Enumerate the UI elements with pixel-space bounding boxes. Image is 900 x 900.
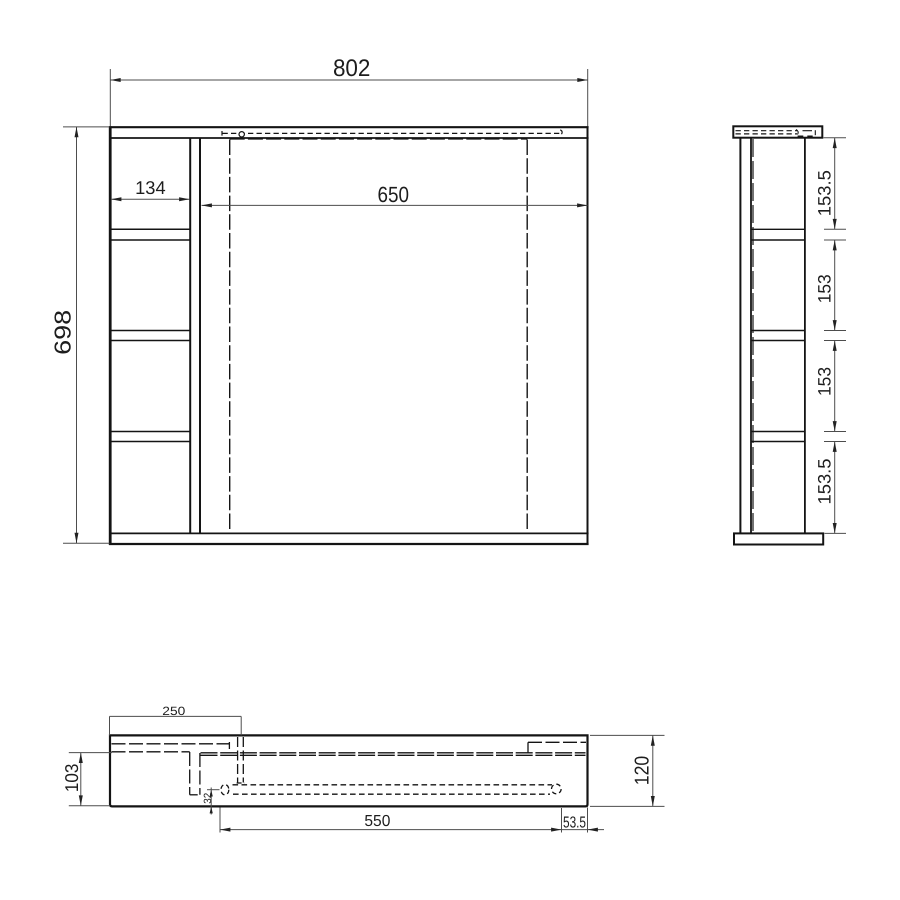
svg-text:153: 153 [814, 274, 834, 303]
svg-text:698: 698 [50, 310, 76, 355]
svg-text:53.5: 53.5 [563, 814, 586, 831]
svg-text:153: 153 [814, 367, 834, 396]
svg-text:153.5: 153.5 [814, 459, 834, 505]
svg-text:32: 32 [202, 793, 214, 804]
svg-text:802: 802 [333, 55, 371, 82]
svg-text:134: 134 [135, 177, 166, 198]
svg-text:550: 550 [364, 813, 390, 830]
svg-text:103: 103 [61, 764, 82, 793]
svg-text:250: 250 [162, 704, 185, 718]
svg-text:153.5: 153.5 [814, 170, 834, 216]
svg-text:120: 120 [631, 756, 653, 786]
svg-text:650: 650 [378, 182, 410, 207]
